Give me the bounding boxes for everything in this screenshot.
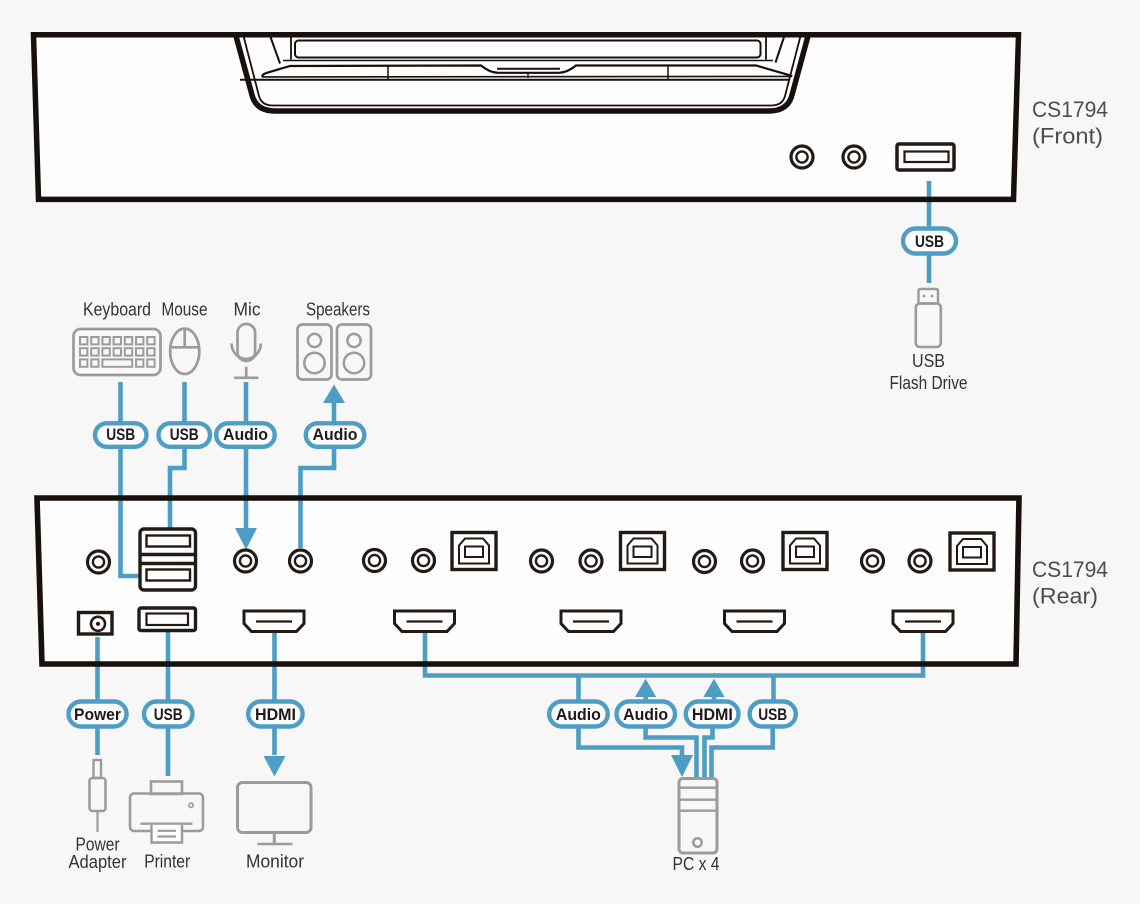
svg-text:Mouse: Mouse — [162, 299, 208, 320]
svg-text:Adapter: Adapter — [69, 851, 127, 872]
svg-text:USB: USB — [912, 350, 945, 371]
svg-text:Monitor: Monitor — [246, 851, 304, 872]
svg-text:(Rear): (Rear) — [1032, 584, 1098, 609]
svg-text:Mic: Mic — [234, 299, 261, 320]
svg-text:Audio: Audio — [623, 706, 668, 724]
svg-text:(Front): (Front) — [1032, 124, 1103, 149]
svg-text:CS1794: CS1794 — [1032, 557, 1108, 582]
svg-text:USB: USB — [915, 233, 944, 251]
svg-text:USB: USB — [154, 706, 183, 724]
svg-text:USB: USB — [758, 706, 787, 724]
svg-text:USB: USB — [106, 426, 135, 444]
svg-text:HDMI: HDMI — [692, 706, 733, 724]
svg-text:Speakers: Speakers — [306, 299, 370, 320]
svg-text:USB: USB — [170, 426, 199, 444]
svg-text:Audio: Audio — [556, 706, 601, 724]
svg-text:Audio: Audio — [223, 426, 268, 444]
svg-text:Keyboard: Keyboard — [83, 299, 151, 320]
svg-text:Flash Drive: Flash Drive — [890, 372, 968, 393]
svg-text:HDMI: HDMI — [255, 706, 296, 724]
svg-text:Audio: Audio — [313, 426, 358, 444]
svg-text:CS1794: CS1794 — [1032, 97, 1108, 122]
svg-text:Printer: Printer — [144, 851, 190, 872]
svg-text:Power: Power — [74, 706, 122, 724]
svg-text:PC x 4: PC x 4 — [673, 853, 720, 874]
